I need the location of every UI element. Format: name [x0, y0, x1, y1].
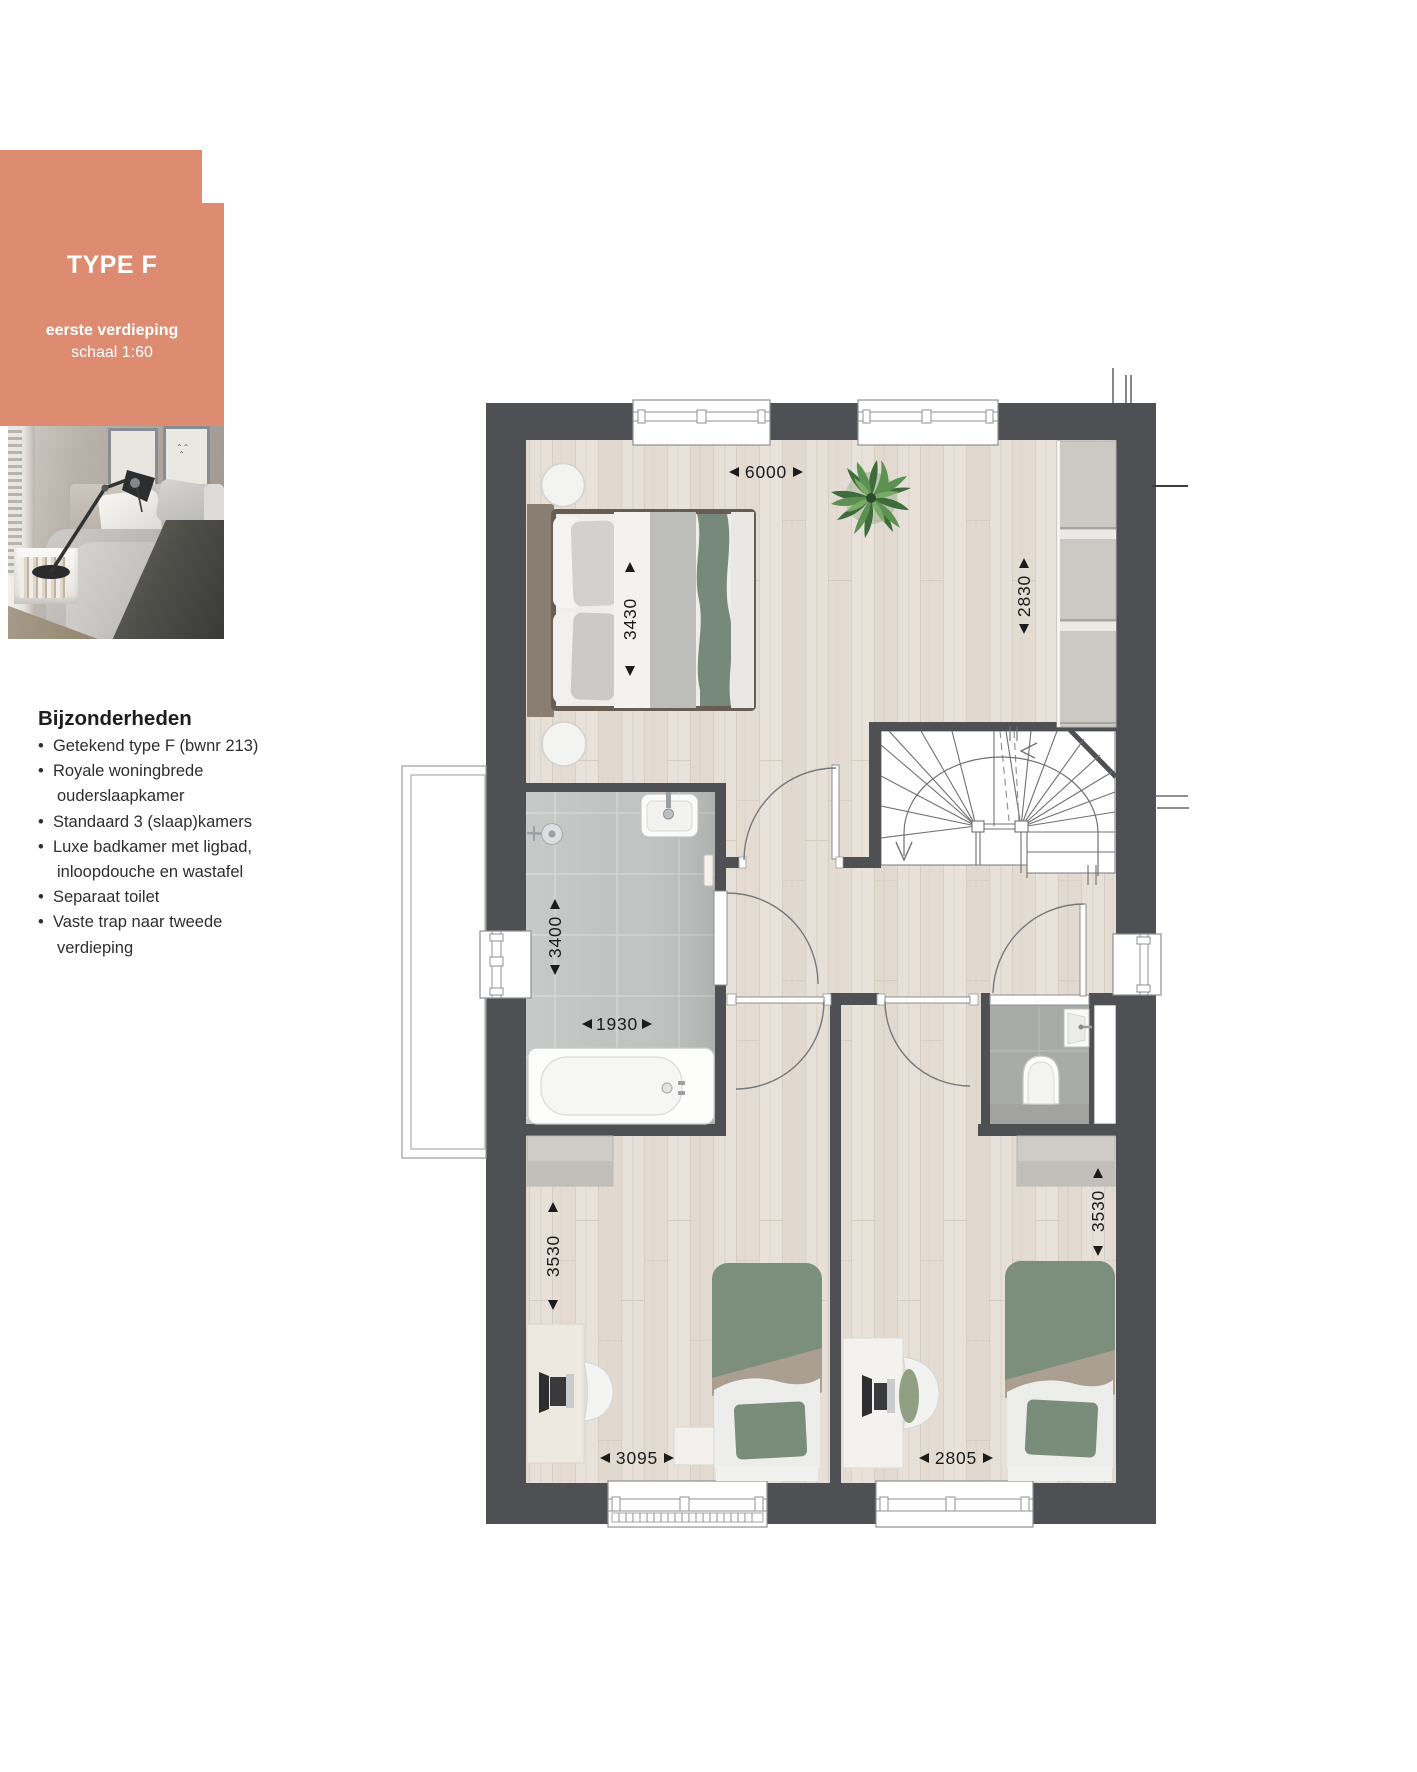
svg-text:3430: 3430 [620, 598, 640, 640]
svg-text:1930: 1930 [596, 1014, 638, 1034]
svg-text:3530: 3530 [543, 1235, 563, 1277]
svg-text:3095: 3095 [616, 1448, 658, 1468]
svg-text:3400: 3400 [545, 916, 565, 958]
svg-text:6000: 6000 [745, 462, 787, 482]
svg-text:3530: 3530 [1088, 1190, 1108, 1232]
svg-text:2805: 2805 [935, 1448, 977, 1468]
svg-text:2830: 2830 [1014, 575, 1034, 617]
